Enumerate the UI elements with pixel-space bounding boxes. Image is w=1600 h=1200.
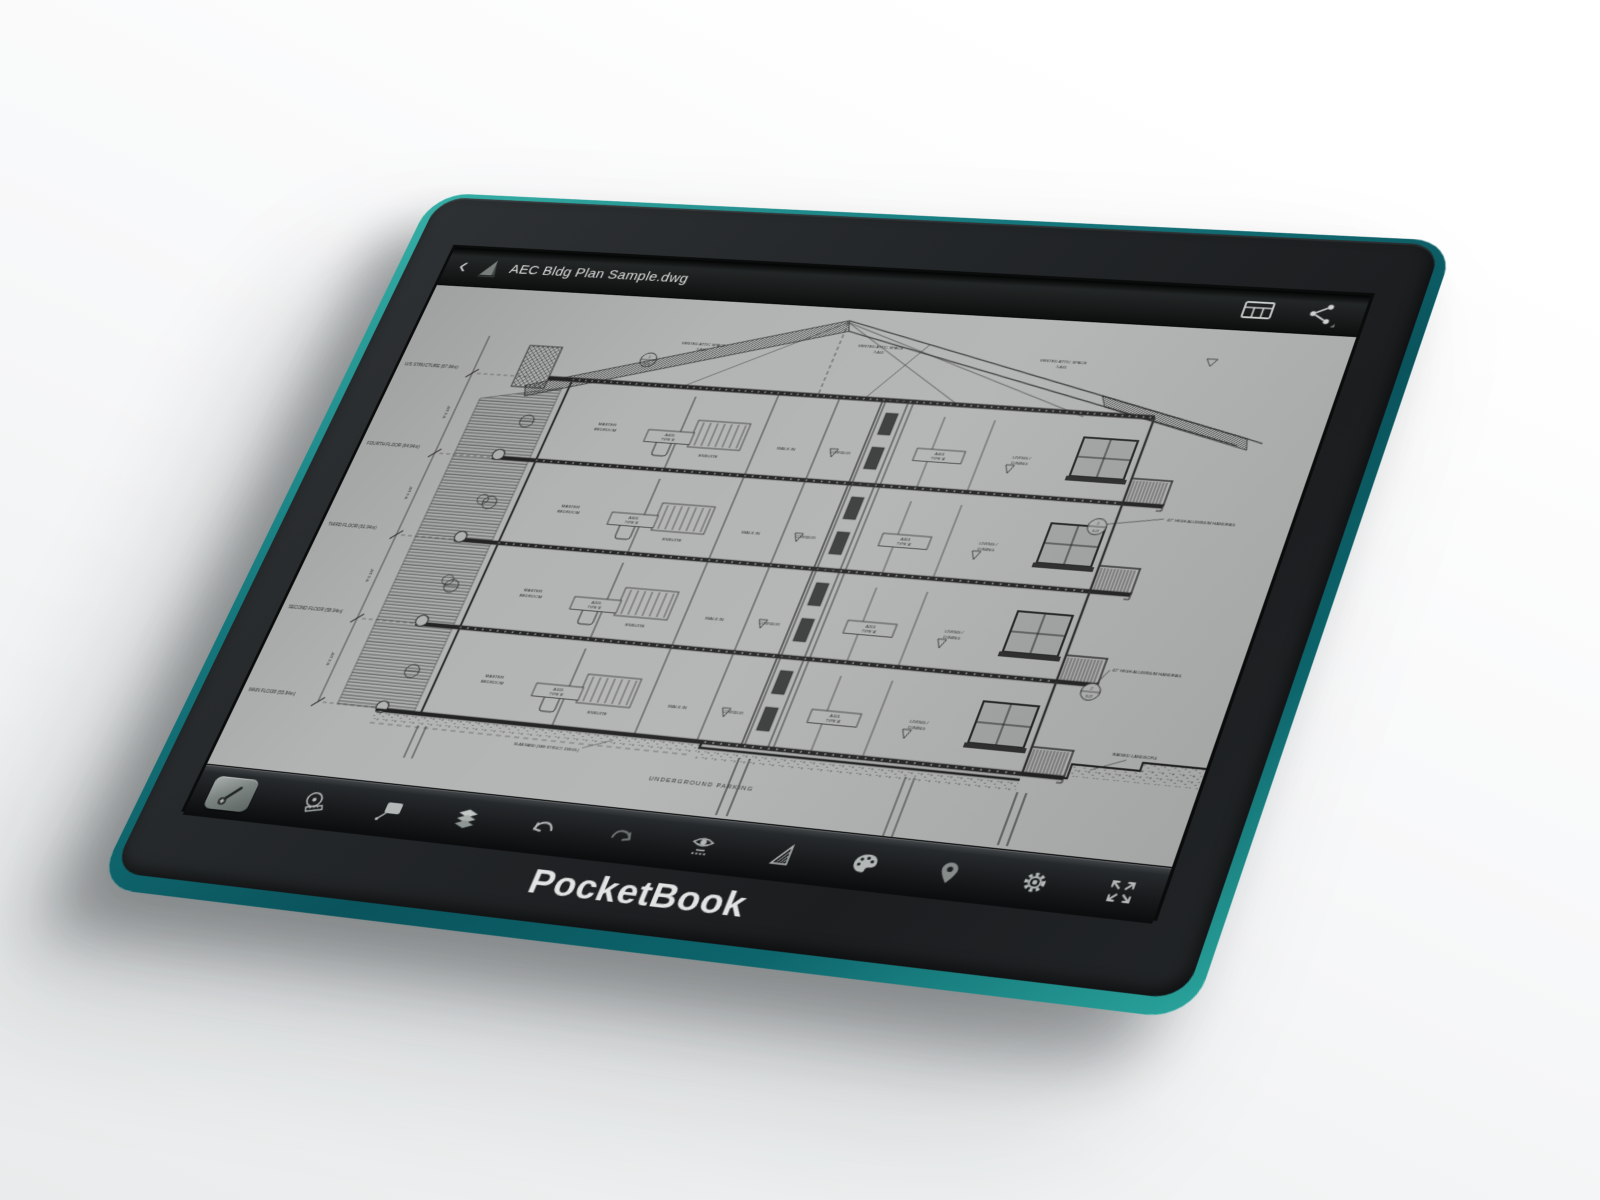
undo-icon <box>524 814 562 843</box>
room-label: ENSUITE <box>698 453 720 459</box>
back-button[interactable]: ‹ <box>449 248 478 285</box>
slab-band-label: SLAB BAND (SEE STRUCT. DWGS.) <box>513 742 580 753</box>
raised-landscaping-label: RAISED LANDSCPG <box>1112 752 1158 761</box>
unit-tag: A105 <box>553 687 564 692</box>
fullscreen-button[interactable] <box>1101 876 1141 907</box>
redo-icon <box>603 822 641 851</box>
storey-dim: 9'-0 1/8" <box>326 651 337 666</box>
sheets-icon[interactable] <box>1238 299 1278 322</box>
attic-label: VENTED ATTIC SPACE <box>857 344 905 351</box>
room-label: WALK IN <box>741 529 762 536</box>
handrail-callout: 42" HIGH ALUMINUM HANDRAIL <box>1111 668 1182 679</box>
unit-tag: A201 <box>865 624 877 629</box>
cad-app-icon <box>472 257 506 280</box>
device-bezel: ‹ AEC Bldg Plan Sample.dwg <box>112 197 1442 1000</box>
level-label: FOURTH FLOOR (64.94m) <box>366 440 422 449</box>
level-label: U/S STRUCTURE (67.94m) <box>404 361 460 369</box>
pencil-plus-icon <box>213 780 250 807</box>
undo-button[interactable] <box>524 814 562 843</box>
unit-tag: A205 <box>591 601 602 606</box>
underground-parking-label: UNDERGROUND PARKING <box>647 776 755 794</box>
unit-tag: A301 <box>900 537 912 542</box>
attic-number: 7-A05 <box>695 347 707 352</box>
room-label: ENSUITE <box>661 536 683 543</box>
palette-button[interactable] <box>846 848 885 878</box>
storey-dim: 9'-0 1/8" <box>404 485 415 499</box>
unit-tag: A401 <box>934 452 945 457</box>
layers-button[interactable] <box>447 805 485 833</box>
attic-labels: VENTED ATTIC SPACE 7-A05 VENTED ATTIC SP… <box>638 332 1090 394</box>
share-icon[interactable] <box>1302 299 1344 328</box>
photo-backdrop: ‹ AEC Bldg Plan Sample.dwg <box>0 0 1600 1200</box>
room-label: ENSUITE <box>624 622 646 629</box>
attic-number: 7-A05 <box>872 351 884 356</box>
room-label: BEDROOM <box>480 678 505 685</box>
room-label: BEDROOM <box>556 508 581 515</box>
section-geometry <box>280 301 1356 867</box>
room-label: WALK IN <box>667 703 688 710</box>
callout-button[interactable] <box>371 797 409 825</box>
annotate-button[interactable] <box>202 775 260 812</box>
location-pin-icon <box>930 857 969 887</box>
room-label: BEDROOM <box>593 426 617 433</box>
drawing-canvas[interactable]: U/S STRUCTURE (67.94m) FOURTH FLOOR (64.… <box>207 285 1356 867</box>
callout-icon <box>371 797 409 825</box>
room-label: WALK IN <box>776 445 797 451</box>
pocketbook-tablet: ‹ AEC Bldg Plan Sample.dwg <box>112 197 1442 1000</box>
attic-label: VENTED ATTIC SPACE <box>1039 359 1088 366</box>
level-label: SECOND FLOOR (58.94m) <box>287 604 344 614</box>
attic-number: 7-A05 <box>1055 365 1067 370</box>
storey-dim: 9'-0 1/8" <box>442 405 453 419</box>
building-section-drawing: U/S STRUCTURE (67.94m) FOURTH FLOOR (64.… <box>207 285 1356 867</box>
palette-icon <box>846 848 885 878</box>
level-label: THIRD FLOOR (61.94m) <box>327 521 378 530</box>
unit-tag: A405 <box>664 433 675 438</box>
unit-tag: A305 <box>628 516 639 521</box>
measure-button[interactable] <box>296 789 333 817</box>
scale-button[interactable] <box>764 840 803 869</box>
room-label: WALK IN <box>704 615 725 622</box>
roof <box>518 304 1297 451</box>
named-views-button[interactable] <box>683 831 722 860</box>
room-label: ENSUITE <box>586 709 608 716</box>
fullscreen-icon <box>1101 876 1141 907</box>
room-label: BEDROOM <box>518 592 543 599</box>
settings-button[interactable] <box>1015 867 1055 897</box>
location-button[interactable] <box>930 857 969 887</box>
gear-icon <box>1015 867 1055 897</box>
measure-icon <box>296 789 333 817</box>
handrail-callout: 42" HIGH ALUMINUM HANDRAIL <box>1166 518 1236 527</box>
storey-dim: 9'-0 1/8" <box>365 568 376 582</box>
level-label: MAIN FLOOR (55.94m) <box>248 687 298 697</box>
layers-icon <box>447 805 485 833</box>
eye-icon <box>683 831 722 860</box>
scale-triangle-icon <box>764 840 803 869</box>
redo-button[interactable] <box>603 822 641 851</box>
detail-ref: 1 <box>648 356 652 360</box>
